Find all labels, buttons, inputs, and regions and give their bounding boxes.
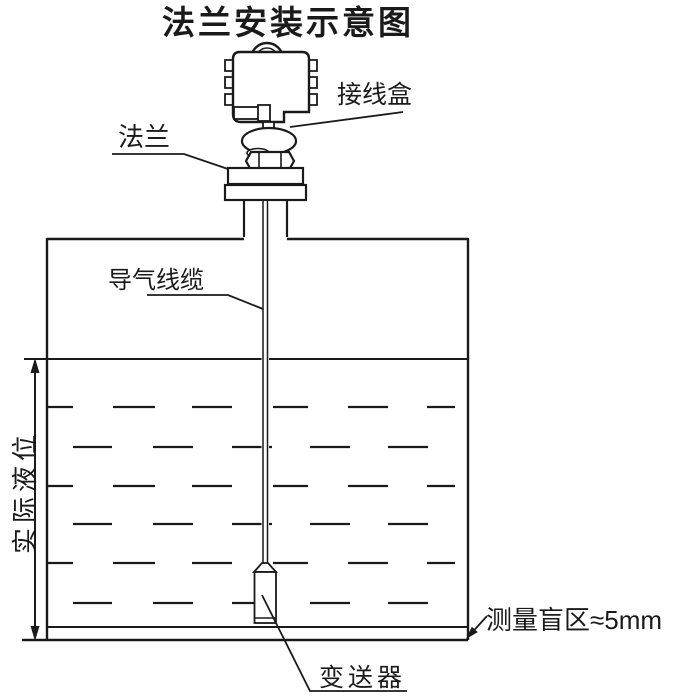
probe-weight (254, 563, 276, 623)
flange-upper-plate (228, 168, 303, 184)
junction-box-leader (290, 112, 403, 127)
blind-zone-label: 测量盲区≈5mm (486, 605, 662, 635)
transmitter-label: 变送器 (319, 664, 406, 692)
diagram-canvas: 法兰安装示意图 接线盒 法兰 导气线缆 实际液位 测量盲区≈5mm 变送器 (0, 0, 700, 700)
tank (22, 238, 468, 640)
transmitter-head (225, 43, 317, 170)
conduit-entry (234, 107, 260, 119)
conduit-block (258, 105, 270, 121)
pneumatic-cable (262, 200, 270, 563)
air-cable-leader (147, 295, 263, 309)
junction-box-label: 接线盒 (337, 81, 412, 109)
flange-leader (112, 154, 228, 169)
arrowhead-down-icon (31, 626, 40, 641)
diagram-title: 法兰安装示意图 (162, 4, 414, 41)
flange-installation-diagram: 法兰安装示意图 接线盒 法兰 导气线缆 实际液位 测量盲区≈5mm 变送器 (0, 0, 700, 700)
liquid-dashes (48, 407, 455, 603)
air-cable-label: 导气线缆 (108, 267, 204, 294)
probe-taper (254, 563, 276, 572)
actual-level-label: 实际液位 (10, 430, 40, 554)
flange-label: 法兰 (118, 122, 170, 152)
flange-lower-plate (225, 185, 306, 200)
arrowhead-up-icon (31, 358, 40, 373)
